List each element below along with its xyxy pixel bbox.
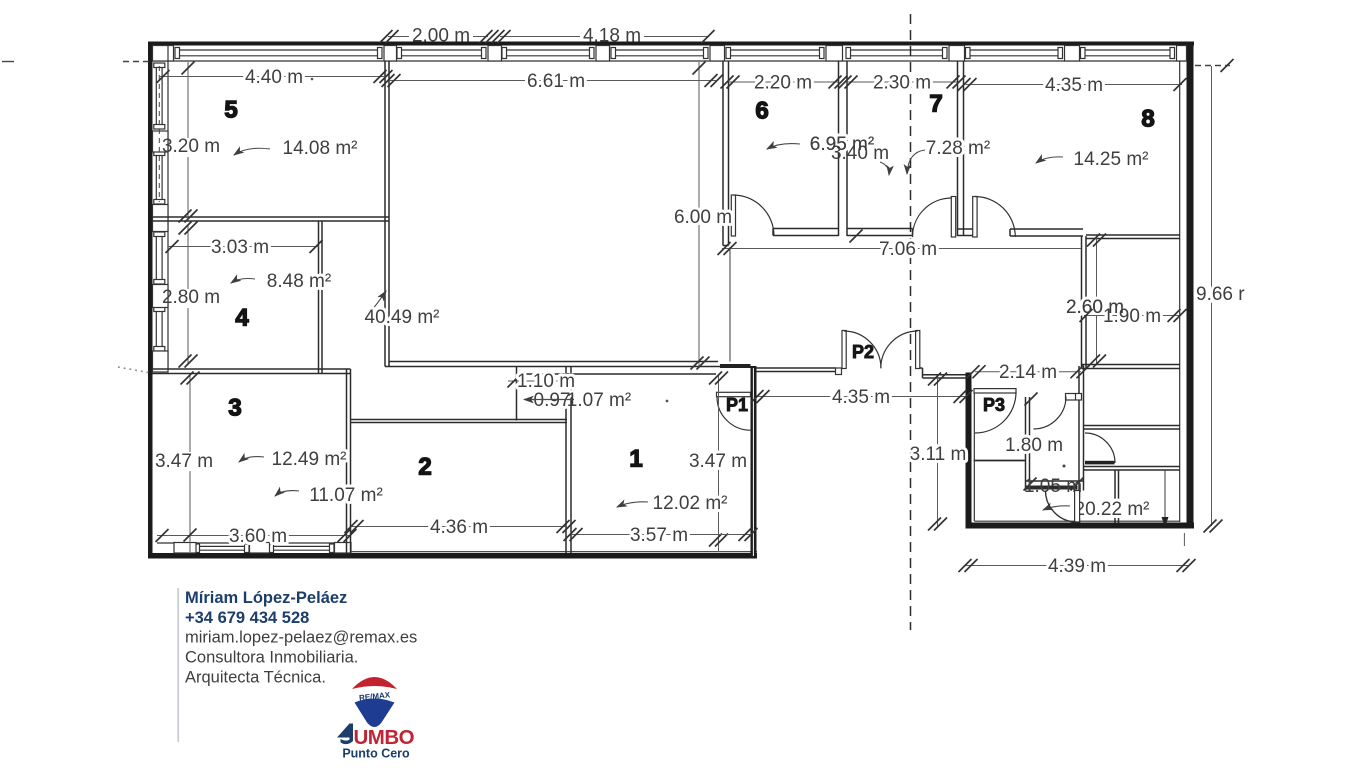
svg-text:11.07 m²: 11.07 m² (309, 485, 383, 506)
svg-text:2.14 m: 2.14 m (999, 362, 1057, 383)
svg-text:3.20 m: 3.20 m (162, 136, 220, 157)
svg-text:1.05 m: 1.05 m (1024, 476, 1082, 497)
svg-text:14.25 m²: 14.25 m² (1074, 149, 1149, 170)
svg-text:8: 8 (1141, 106, 1154, 133)
svg-text:4.36 m: 4.36 m (430, 517, 488, 538)
svg-text:14.08 m²: 14.08 m² (283, 138, 358, 159)
svg-text:0.97: 0.97 (534, 390, 571, 411)
svg-text:2.30 m: 2.30 m (873, 73, 931, 94)
svg-text:Míriam López-Peláez: Míriam López-Peláez (185, 589, 347, 607)
svg-text:3.11 m: 3.11 m (910, 444, 967, 465)
svg-text:1: 1 (629, 446, 642, 473)
svg-text:6.00 m: 6.00 m (674, 207, 732, 228)
svg-text:8.48 m²: 8.48 m² (267, 271, 331, 292)
svg-text:1.10 m: 1.10 m (517, 371, 575, 392)
svg-text:7.06 m: 7.06 m (879, 239, 937, 260)
svg-text:4.35 m: 4.35 m (832, 387, 890, 408)
svg-text:P2: P2 (852, 342, 874, 362)
svg-text:3.03 m: 3.03 m (211, 237, 269, 258)
svg-text:3: 3 (228, 395, 241, 422)
svg-text:2.00 m: 2.00 m (412, 26, 470, 47)
svg-text:3.47 m: 3.47 m (155, 451, 213, 472)
svg-text:P3: P3 (983, 395, 1005, 415)
svg-text:12.49 m²: 12.49 m² (272, 449, 347, 470)
svg-text:2.80 m: 2.80 m (162, 287, 220, 308)
svg-text:6.95 m²: 6.95 m² (810, 134, 874, 155)
svg-text:+34 679 434 528: +34 679 434 528 (185, 609, 309, 627)
svg-text:20.22 m²: 20.22 m² (1075, 499, 1150, 520)
svg-text:2.20 m: 2.20 m (754, 73, 812, 94)
svg-text:Arquitecta Técnica.: Arquitecta Técnica. (185, 669, 326, 687)
svg-text:4.18 m: 4.18 m (583, 26, 641, 47)
svg-text:3.60 m: 3.60 m (229, 526, 287, 547)
svg-text:3.57 m: 3.57 m (630, 525, 688, 546)
svg-text:6: 6 (755, 98, 768, 125)
svg-text:2.60 m: 2.60 m (1066, 297, 1124, 318)
svg-text:7: 7 (929, 91, 942, 118)
svg-text:40.49 m²: 40.49 m² (365, 307, 440, 328)
svg-text:4.40 m: 4.40 m (245, 67, 303, 88)
svg-text:1.07 m²: 1.07 m² (567, 390, 631, 411)
svg-text:4.39 m: 4.39 m (1048, 556, 1106, 577)
svg-text:2: 2 (418, 454, 431, 481)
svg-text:4: 4 (235, 305, 249, 332)
svg-text:1.80 m: 1.80 m (1005, 435, 1063, 456)
svg-text:Consultora Inmobiliaria.: Consultora Inmobiliaria. (185, 649, 358, 667)
svg-text:5: 5 (224, 97, 237, 124)
svg-text:3.47 m: 3.47 m (689, 451, 747, 472)
svg-text:4.35 m: 4.35 m (1045, 75, 1103, 96)
svg-text:12.02 m²: 12.02 m² (653, 493, 728, 514)
svg-text:6.61 m: 6.61 m (527, 71, 585, 92)
svg-text:9.66 r: 9.66 r (1196, 284, 1245, 305)
svg-text:Punto Cero: Punto Cero (342, 747, 410, 761)
svg-text:7.28 m²: 7.28 m² (926, 138, 990, 159)
svg-text:P1: P1 (726, 395, 748, 415)
svg-text:miriam.lopez-pelaez@remax.es: miriam.lopez-pelaez@remax.es (185, 629, 417, 647)
